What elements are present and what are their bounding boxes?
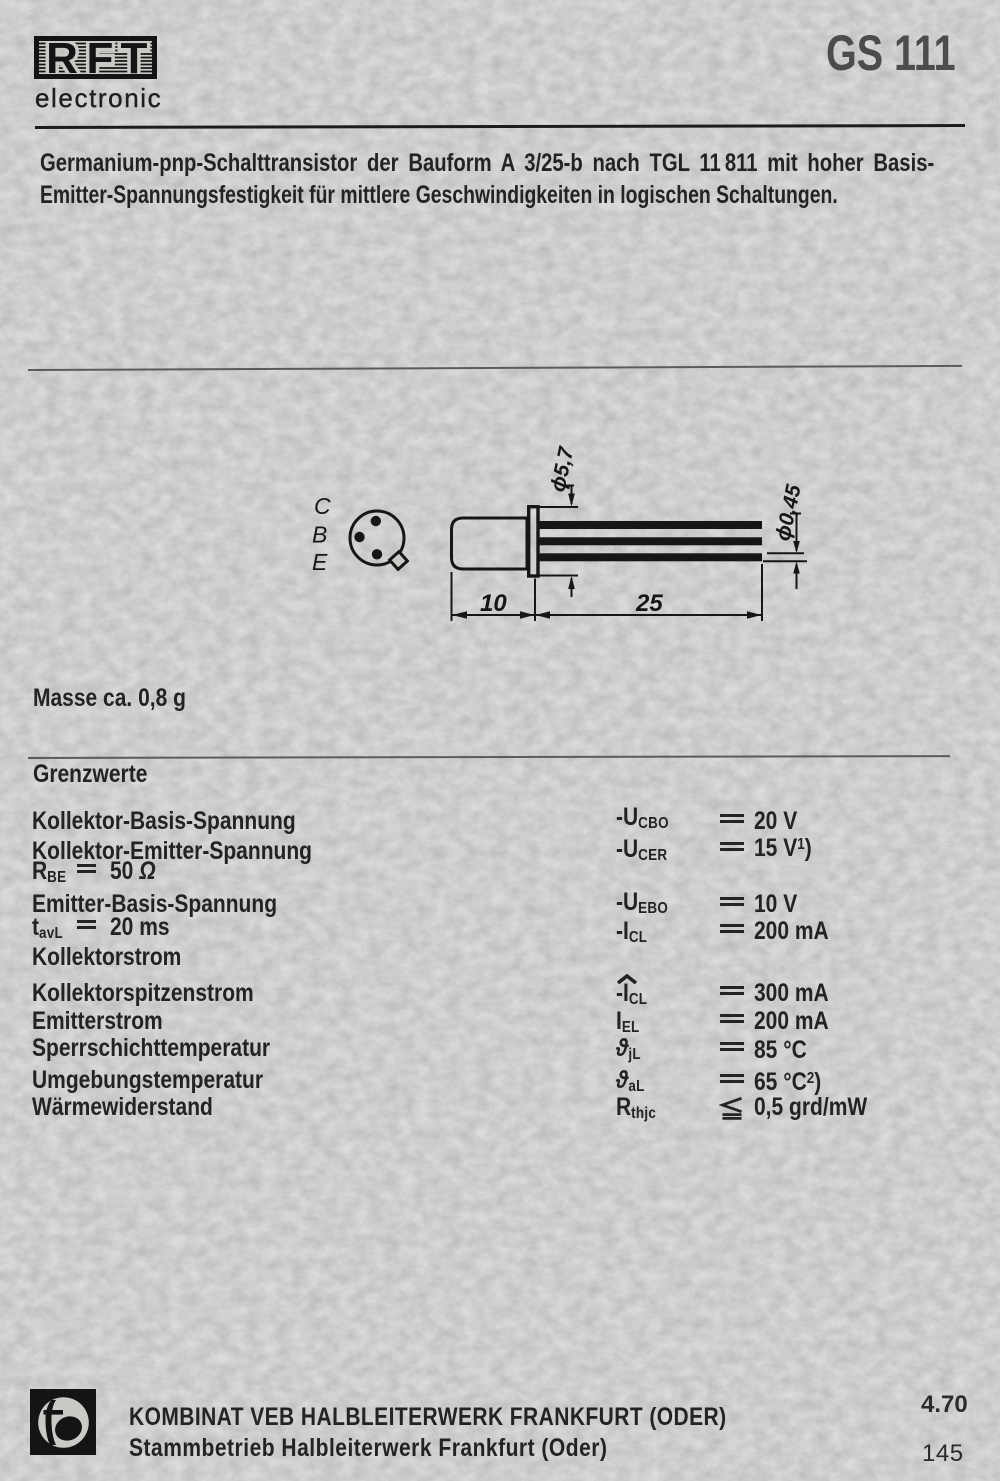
svg-text:F: F [87, 36, 114, 79]
svg-text:T: T [121, 36, 148, 79]
svg-text:ϕ5,7: ϕ5,7 [546, 444, 578, 494]
svg-text:25: 25 [635, 590, 663, 617]
svg-text:C: C [314, 493, 331, 519]
svg-text:R: R [46, 36, 78, 79]
svg-text:E: E [312, 549, 328, 575]
svg-text:B: B [312, 522, 327, 548]
svg-text:10: 10 [480, 590, 507, 617]
